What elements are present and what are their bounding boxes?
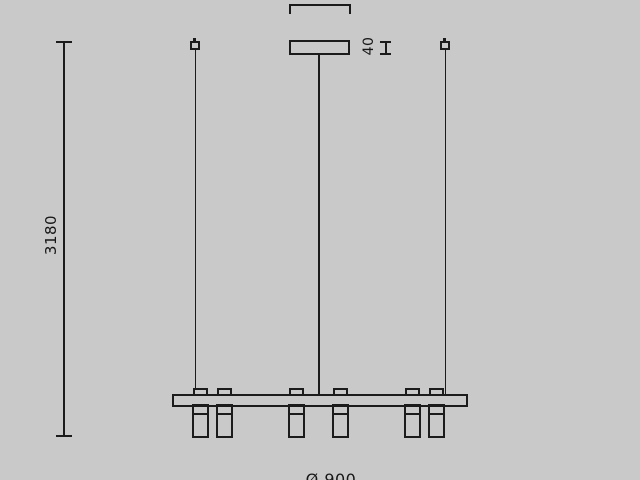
left-cable-gripper [190,41,200,50]
central-stem-rod [318,54,320,395]
lamp-3-body [288,404,305,438]
canopy-width-tick-left [289,4,291,14]
lamp-5-ring [404,413,421,415]
lamp-6-ring [428,413,445,415]
height-dimension-label: 3180 [42,215,60,255]
right-suspension-cable [445,50,447,395]
lamp-4-ring [332,413,349,415]
lamp-2-cap [217,388,232,396]
lamp-5-cap [405,388,420,396]
right-cable-gripper [440,41,450,50]
height-dimension-line [63,42,65,437]
canopy-width-dimension-line [289,4,351,6]
technical-drawing-canvas: 3180 Ø 180 40 Ø 900 [0,0,640,480]
lamp-2-body [216,404,233,438]
lamp-1-cap [193,388,208,396]
canopy-height-tick-top [380,41,391,43]
canopy-height-dimension-label: 40 [361,37,377,56]
lamp-6-body [428,404,445,438]
lamp-3-cap [289,388,304,396]
canopy-width-dimension-label: Ø 180 [296,0,344,2]
lamp-4-body [332,404,349,438]
lamp-2-ring [216,413,233,415]
lamp-1-body [192,404,209,438]
height-dimension-tick-bottom [56,435,72,437]
lamp-6-cap [429,388,444,396]
canopy-plate [289,40,350,55]
fixture-diameter-label: Ø 900 [306,470,357,480]
height-dimension-tick-top [56,41,72,43]
lamp-4-cap [333,388,348,396]
lamp-1-ring [192,413,209,415]
lamp-5-body [404,404,421,438]
left-suspension-cable [195,50,197,390]
canopy-height-tick-bottom [380,53,391,55]
lamp-3-ring [288,413,305,415]
canopy-width-tick-right [349,4,351,14]
